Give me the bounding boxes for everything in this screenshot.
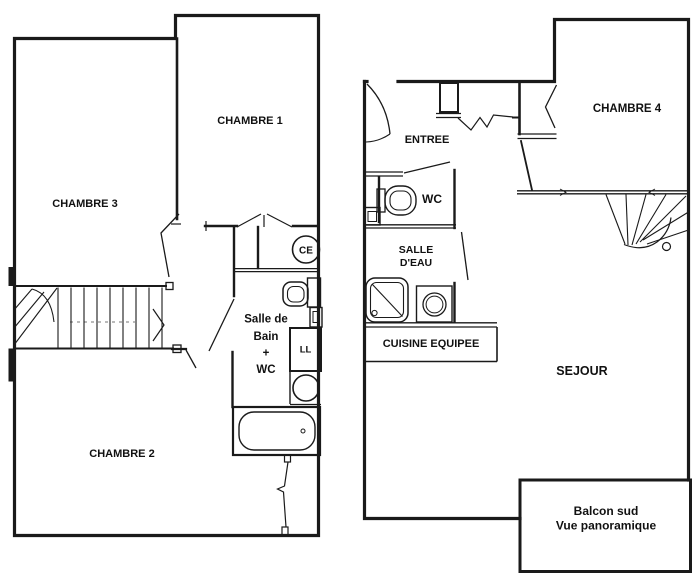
chambre4-entry [518, 83, 557, 190]
label-ce: CE [299, 246, 313, 257]
wc-room [365, 162, 457, 228]
floor-plan-svg: CHAMBRE 1 CHAMBRE 3 CHAMBRE 2 CE Salle d… [0, 0, 700, 582]
label-wc: WC [422, 192, 442, 206]
bathtub [239, 412, 315, 450]
entrance-door [366, 84, 390, 142]
label-chambre-2: CHAMBRE 2 [89, 448, 154, 460]
floor-plan-page: CHAMBRE 1 CHAMBRE 3 CHAMBRE 2 CE Salle d… [0, 0, 700, 582]
door-chambre2 [186, 350, 196, 368]
label-chambre-4: CHAMBRE 4 [593, 103, 662, 115]
label-balcon-1: Balcon sud [574, 504, 639, 518]
washbasin-main [365, 208, 381, 226]
label-bath-1: Salle de [244, 314, 287, 326]
label-bath-2: Bain [254, 331, 279, 343]
upper-floor-plan: CHAMBRE 1 CHAMBRE 3 CHAMBRE 2 CE Salle d… [9, 16, 323, 537]
door-chambre4 [546, 85, 557, 128]
stair-treads-main [606, 195, 689, 246]
bathroom-fixtures [233, 278, 322, 455]
washbasin-upper [293, 375, 319, 401]
upper-outer-walls [15, 16, 319, 536]
door-wc [404, 162, 450, 173]
entry-closet [436, 83, 461, 118]
label-salle-eau-1: SALLE [399, 244, 433, 256]
label-cuisine: CUISINE EQUIPEE [383, 338, 480, 350]
staircase-main [517, 189, 689, 251]
door-chambre1-left-leaf [237, 214, 261, 227]
label-chambre-1: CHAMBRE 1 [217, 115, 282, 127]
door-bathroom [209, 299, 234, 351]
label-ll: LL [300, 345, 312, 356]
label-entree: ENTREE [405, 134, 450, 146]
column-box [310, 308, 322, 328]
staircase-upper [9, 267, 182, 382]
window-chambre2 [278, 455, 291, 536]
door-salle-eau [462, 232, 469, 280]
label-bath-3: + [263, 348, 270, 360]
label-sejour: SEJOUR [556, 364, 607, 378]
folding-door [458, 115, 518, 130]
stair-treads [14, 288, 162, 348]
door-chambre1-right-leaf [267, 214, 292, 227]
label-salle-eau-2: D'EAU [400, 257, 432, 269]
label-bath-4: WC [256, 364, 275, 376]
label-balcon-2: Vue panoramique [556, 519, 657, 533]
stair-newel [663, 243, 671, 251]
main-floor-plan: ENTREE WC CHAMBRE 4 SALLE D'EAU CUISINE … [365, 20, 691, 572]
label-chambre-3: CHAMBRE 3 [52, 198, 117, 210]
